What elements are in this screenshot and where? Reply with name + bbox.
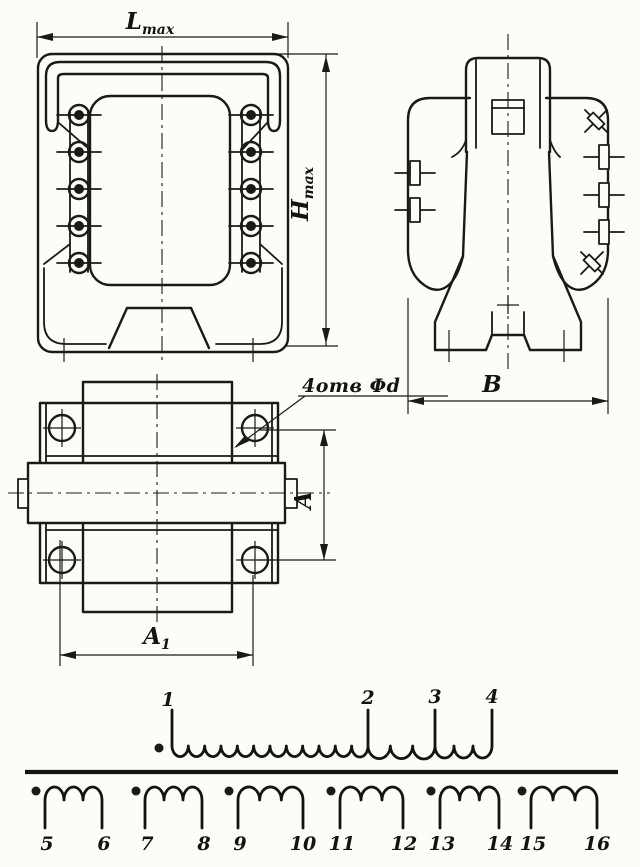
hmax-sub: max: [301, 166, 317, 199]
secondary-coil: [340, 787, 403, 828]
drawing-sheet: Lmax Hmax: [0, 0, 640, 867]
front-shell-inner-edge: [44, 268, 282, 344]
transformer-technical-drawing: Lmax Hmax: [0, 0, 640, 867]
secondary-coil: [238, 787, 303, 828]
terminal-label-15: 15: [520, 833, 546, 855]
side-pins-left: [395, 161, 435, 222]
polarity-dot: [518, 787, 527, 796]
winding-schematic: 1 2 3 4 5 6 7 8 9 10 11 12: [25, 686, 618, 855]
dimension-label-lmax: Lmax: [125, 8, 175, 38]
polarity-dot: [132, 787, 141, 796]
a1-sub: 1: [161, 637, 171, 653]
dimension-label-hmax: Hmax: [287, 166, 317, 222]
base-tick-marks: [64, 338, 253, 362]
primary-winding: 1 2 3 4: [155, 686, 499, 759]
lmax-sub: max: [142, 22, 175, 38]
terminal-label-16: 16: [584, 833, 610, 855]
secondary-winding-13-14: 13 14: [427, 787, 514, 856]
strap-side-flares: [452, 140, 560, 157]
terminal-label-14: 14: [487, 833, 513, 855]
dimension-label-a: A: [290, 491, 317, 511]
coil-bobbin-outline: [90, 96, 230, 285]
secondary-winding-11-12: 11 12: [327, 787, 418, 856]
terminal-label-7: 7: [140, 833, 153, 855]
secondary-winding-9-10: 9 10: [225, 787, 317, 856]
mounting-hole: [43, 541, 81, 579]
polarity-dot: [427, 787, 436, 796]
terminal-label-10: 10: [290, 833, 316, 855]
side-view: B: [395, 34, 624, 414]
front-view: Lmax Hmax: [37, 8, 338, 364]
secondary-winding-15-16: 15 16: [518, 787, 611, 856]
dimension-label-b: B: [481, 371, 501, 398]
dimension-label-a1: A1: [141, 623, 171, 653]
terminal-label-2: 2: [360, 687, 374, 709]
terminal-label-13: 13: [429, 833, 455, 855]
secondary-coil: [440, 787, 499, 828]
primary-winding-coil: [172, 710, 492, 759]
base-trapezoid: [109, 308, 209, 348]
dimension-hmax: Hmax: [262, 54, 338, 346]
b-base: B: [481, 371, 501, 398]
holes-callout-label: 4отв Φd: [302, 375, 400, 397]
secondary-coil: [531, 787, 597, 828]
terminal-label-12: 12: [391, 833, 417, 855]
a-base: A: [290, 491, 317, 511]
terminal-lugs-right: [229, 105, 273, 273]
terminal-strips: [70, 112, 260, 272]
terminal-label-3: 3: [428, 686, 441, 708]
terminal-label-11: 11: [329, 833, 355, 855]
hmax-base: H: [287, 198, 314, 222]
secondary-coil: [45, 787, 102, 828]
mounting-hole: [43, 409, 81, 447]
twisted-lug-top: [585, 110, 607, 132]
secondary-coil: [145, 787, 202, 828]
terminal-label-8: 8: [196, 833, 210, 855]
lmax-base: L: [125, 8, 142, 35]
polarity-dot: [327, 787, 336, 796]
terminal-label-1: 1: [161, 689, 174, 711]
a1-base: A: [141, 623, 161, 650]
holes-callout: 4отв Φd: [234, 375, 448, 448]
terminal-label-9: 9: [233, 833, 246, 855]
polarity-dot: [32, 787, 41, 796]
twisted-lug-bottom: [581, 252, 603, 274]
terminal-label-6: 6: [97, 833, 110, 855]
polarity-dot: [155, 744, 164, 753]
polarity-dot: [225, 787, 234, 796]
secondary-winding-7-8: 7 8: [132, 787, 211, 856]
side-pins-right: [584, 145, 624, 244]
terminal-label-5: 5: [40, 833, 53, 855]
secondary-winding-5-6: 5 6: [32, 787, 111, 856]
terminal-label-4: 4: [485, 686, 498, 708]
bottom-view: 4отв Φd A A1: [8, 374, 448, 666]
